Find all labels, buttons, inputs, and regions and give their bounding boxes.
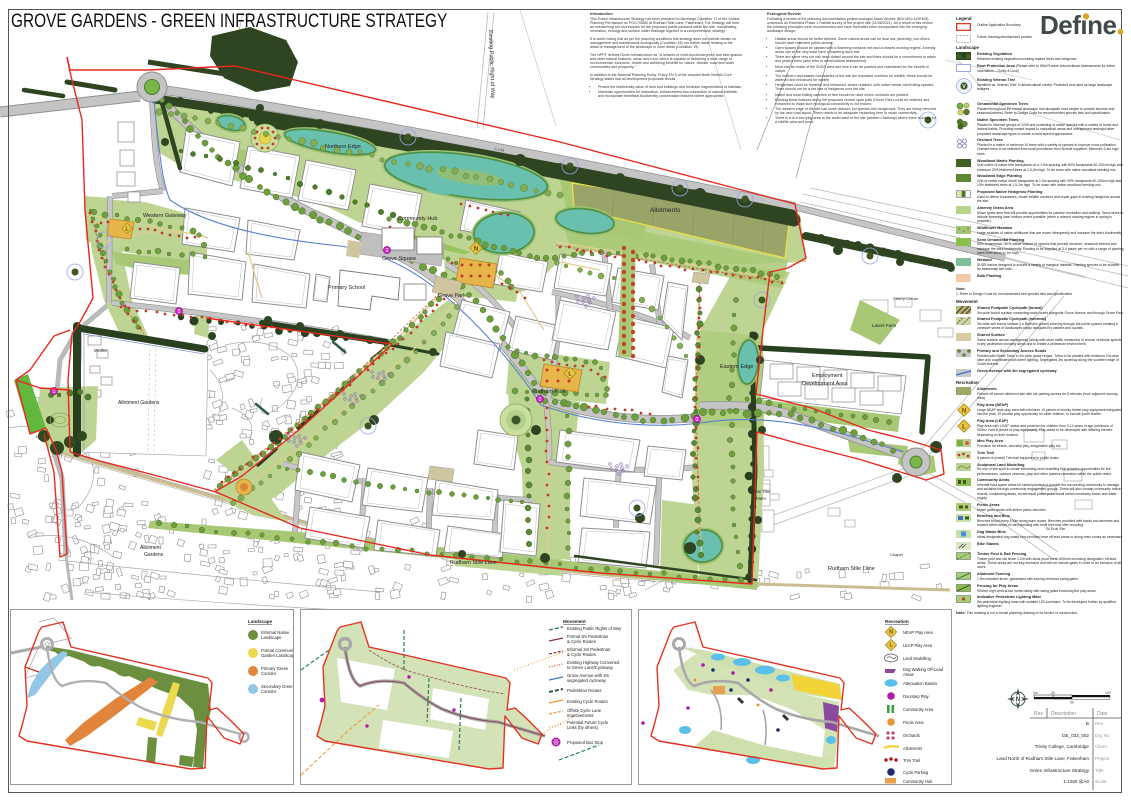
svg-text:Community Area: Community Area	[903, 707, 934, 712]
svg-text:L: L	[889, 643, 892, 649]
svg-text:Attenuation Basins: Attenuation Basins	[903, 681, 937, 686]
svg-text:Picnic Area: Picnic Area	[903, 720, 924, 725]
svg-text:50: 50	[1070, 701, 1074, 705]
svg-text:Links (by others): Links (by others)	[567, 725, 599, 730]
svg-text:Landscape: Landscape	[261, 635, 282, 640]
svg-text:Corridor: Corridor	[261, 671, 277, 676]
svg-text:Existing Public Rights of Way: Existing Public Rights of Way	[567, 626, 622, 631]
svg-text:Land Modelling: Land Modelling	[903, 656, 931, 661]
svg-text:N: N	[889, 630, 893, 636]
svg-text:0m: 0m	[1033, 691, 1038, 695]
svg-text:Corridor: Corridor	[261, 689, 277, 694]
svg-text:N: N	[962, 408, 966, 414]
svg-text:Trim Trail: Trim Trail	[903, 758, 920, 763]
svg-text:100: 100	[1105, 691, 1111, 695]
svg-text:25: 25	[1051, 691, 1055, 695]
svg-text:Cycle Parking: Cycle Parking	[903, 770, 929, 775]
svg-text:Proposed Bus Stop: Proposed Bus Stop	[567, 740, 604, 745]
svg-text:to Green Lane/Cycleway: to Green Lane/Cycleway	[567, 665, 614, 670]
svg-text:L: L	[962, 425, 966, 431]
svg-text:Doorstep Play: Doorstep Play	[903, 694, 930, 699]
svg-text:Recreation: Recreation	[885, 619, 909, 624]
svg-text:Improvements: Improvements	[567, 713, 594, 718]
svg-text:segregated cycleway: segregated cycleway	[567, 678, 607, 683]
svg-text:NEAP Play Area: NEAP Play Area	[903, 630, 933, 635]
svg-text:Orchards: Orchards	[903, 733, 920, 738]
svg-text:Allotments: Allotments	[903, 746, 922, 751]
svg-text:Pedestrian Routes: Pedestrian Routes	[567, 688, 601, 693]
svg-text:Movement: Movement	[563, 619, 586, 624]
svg-text:Community Hub: Community Hub	[903, 779, 933, 784]
svg-text:& Cycle Routes: & Cycle Routes	[567, 652, 596, 657]
svg-text:LEAP Play Area: LEAP Play Area	[903, 643, 933, 648]
svg-text:Existing Cycle Routes: Existing Cycle Routes	[567, 699, 608, 704]
svg-text:N: N	[1015, 696, 1020, 703]
svg-text:Garden Landscape: Garden Landscape	[261, 653, 293, 658]
svg-text:& Cycle Routes: & Cycle Routes	[567, 639, 596, 644]
svg-text:Areas: Areas	[903, 672, 914, 677]
svg-text:Rev: Rev	[1034, 711, 1043, 717]
svg-text:Landscape: Landscape	[248, 619, 272, 624]
svg-text:Description: Description	[1051, 711, 1076, 717]
svg-text:Date: Date	[1097, 711, 1108, 717]
